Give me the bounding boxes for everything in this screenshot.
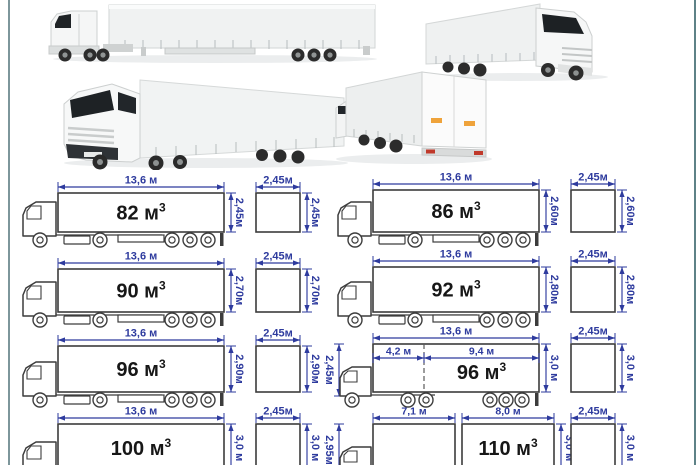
dimension-arrowhead bbox=[217, 260, 224, 265]
cross-section-square bbox=[256, 269, 300, 312]
height-dimension-label: 2,70м bbox=[233, 276, 245, 306]
wheel-hub bbox=[545, 67, 551, 73]
cross-section-diagram: 2,45м2,80м bbox=[571, 249, 636, 313]
dimension-arrowhead bbox=[228, 424, 233, 431]
wheel-hub bbox=[519, 397, 525, 403]
dimension-arrowhead bbox=[293, 337, 300, 342]
dimension-arrowhead bbox=[58, 260, 65, 265]
volume-label: 96 м3 bbox=[116, 357, 166, 381]
volume-label: 100 м3 bbox=[111, 436, 172, 460]
rear-bumper-bar bbox=[220, 233, 224, 246]
dimension-arrowhead bbox=[619, 385, 624, 392]
cross-section-square bbox=[571, 344, 615, 392]
side-skirt-drawing bbox=[433, 315, 479, 322]
volume-label: 92 м3 bbox=[431, 278, 481, 302]
diagram-row: 13,6 м2,45м82 м32,45м2,45м13,6 м2,60м86 … bbox=[23, 172, 636, 248]
fuel-tank-drawing bbox=[379, 316, 405, 324]
wheel-hub bbox=[187, 317, 193, 323]
wheel-hub bbox=[37, 237, 43, 243]
cab-window-drawing bbox=[27, 206, 41, 219]
dimension-arrowhead bbox=[543, 305, 548, 312]
wheel-hub bbox=[177, 159, 183, 165]
semi-truck-front-quarter-left-photo bbox=[56, 68, 348, 170]
segment-dimension-label: 7,1 м bbox=[401, 406, 427, 418]
dimension-arrowhead bbox=[543, 385, 548, 392]
dimension-arrowhead bbox=[256, 415, 263, 420]
dimension-arrowhead bbox=[217, 184, 224, 189]
truck-diagram: 13,6 м3,0 м100 м3 bbox=[23, 406, 245, 465]
wheel-hub bbox=[37, 397, 43, 403]
wheel-hub bbox=[169, 397, 175, 403]
truck-diagram: 13,6 м2,80м92 м3 bbox=[338, 249, 560, 328]
length-dimension-label: 13,6 м bbox=[125, 175, 158, 187]
segment-dimension-label: 8,0 м bbox=[495, 406, 521, 418]
wheel-hub bbox=[412, 237, 418, 243]
wheel-hub bbox=[352, 317, 358, 323]
wheel-hub bbox=[97, 159, 103, 165]
dimension-arrowhead bbox=[619, 190, 624, 197]
height-dimension-label: 2,80м bbox=[548, 275, 560, 305]
dimension-arrowhead bbox=[543, 190, 548, 197]
rear-marker-light bbox=[431, 118, 442, 123]
fuel-tank-drawing bbox=[64, 396, 90, 404]
dimension-arrowhead bbox=[462, 415, 469, 420]
wheel-hub bbox=[37, 317, 43, 323]
wheel bbox=[274, 150, 287, 163]
wheel-hub bbox=[87, 52, 92, 57]
dimension-arrowhead bbox=[58, 184, 65, 189]
wheel-hub bbox=[153, 160, 159, 166]
width-dimension-label: 2,45м bbox=[263, 406, 293, 418]
dimension-arrowhead bbox=[532, 335, 539, 340]
dimension-arrowhead bbox=[336, 424, 341, 431]
hazard-marking bbox=[474, 151, 483, 155]
volume-label: 86 м3 bbox=[431, 199, 481, 223]
diagram-row: 13,6 м2,70м90 м32,45м2,70м13,6 м2,80м92 … bbox=[23, 249, 636, 328]
dimension-arrowhead bbox=[228, 385, 233, 392]
rear-bumper-bar bbox=[220, 313, 224, 326]
dimension-arrowhead bbox=[304, 346, 309, 353]
dimension-arrowhead bbox=[373, 335, 380, 340]
length-dimension-label: 13,6 м bbox=[125, 406, 158, 418]
volume-label: 110 м3 bbox=[478, 436, 538, 460]
dimension-arrowhead bbox=[304, 385, 309, 392]
wheel-hub bbox=[295, 52, 300, 57]
cross-section-diagram: 2,45м3,0 м bbox=[571, 406, 636, 465]
dimension-arrowhead bbox=[619, 424, 624, 431]
dimension-arrowhead bbox=[532, 258, 539, 263]
cross-section-diagram: 2,45м3,0 м bbox=[256, 406, 321, 465]
diagram-row: 13,6 м2,90м96 м32,45м2,90м13,6 м4,2 м9,4… bbox=[23, 326, 636, 408]
rear-bumper-bar bbox=[535, 393, 539, 406]
dimension-arrowhead bbox=[543, 267, 548, 274]
cab-window-drawing bbox=[342, 206, 356, 219]
wheel-hub bbox=[100, 52, 105, 57]
volume-label: 82 м3 bbox=[116, 201, 166, 225]
dimension-arrowhead bbox=[532, 181, 539, 186]
truck-volume-diagram: 13,6 м2,45м82 м32,45м2,45м13,6 м2,60м86 … bbox=[0, 170, 700, 465]
cab-window-drawing bbox=[27, 446, 41, 459]
cross-section-square bbox=[256, 346, 300, 392]
cross-section-diagram: 2,45м2,60м bbox=[571, 172, 636, 233]
width-dimension-label: 2,45м bbox=[263, 175, 293, 187]
dimension-arrowhead bbox=[608, 181, 615, 186]
dimension-arrowhead bbox=[336, 344, 341, 351]
dimension-arrowhead bbox=[304, 424, 309, 431]
width-dimension-label: 2,45м bbox=[263, 328, 293, 340]
cross-section-square bbox=[571, 190, 615, 232]
cross-section-square bbox=[571, 424, 615, 465]
side-skirt-drawing bbox=[118, 315, 164, 322]
dimension-arrowhead bbox=[619, 267, 624, 274]
dimension-arrowhead bbox=[58, 415, 65, 420]
wheel-hub bbox=[327, 52, 332, 57]
truck-diagram: 13,6 м2,70м90 м3 bbox=[23, 251, 245, 328]
dimension-arrowhead bbox=[373, 415, 380, 420]
wheel-hub bbox=[573, 70, 579, 76]
segment-dimension-label: 9,4 м bbox=[469, 346, 495, 358]
cross-section-diagram: 2,45м2,45м bbox=[256, 175, 321, 233]
dimension-arrowhead bbox=[608, 415, 615, 420]
dimension-arrowhead bbox=[547, 415, 554, 420]
dimension-arrowhead bbox=[571, 335, 578, 340]
wheel-hub bbox=[412, 317, 418, 323]
side-skirt-drawing bbox=[433, 235, 479, 242]
width-dimension-label: 2,45м bbox=[263, 251, 293, 263]
cross-section-diagram: 2,45м2,90м bbox=[256, 328, 321, 393]
diagram-row: 13,6 м3,0 м100 м32,45м3,0 м7,1 м8,0 м3,0… bbox=[23, 406, 636, 465]
fuel-tank-drawing bbox=[64, 236, 90, 244]
dimension-arrowhead bbox=[293, 415, 300, 420]
rear-bumper bbox=[363, 46, 370, 55]
trailer-curtain bbox=[109, 5, 375, 48]
cab-window-drawing bbox=[27, 286, 41, 299]
dimension-arrowhead bbox=[558, 424, 563, 431]
rear-bumper-bar bbox=[535, 313, 539, 326]
height-dimension-label: 2,80м bbox=[624, 275, 636, 305]
dimension-arrowhead bbox=[619, 344, 624, 351]
dimension-arrowhead bbox=[304, 305, 309, 312]
dimension-arrowhead bbox=[543, 225, 548, 232]
dimension-arrowhead bbox=[256, 260, 263, 265]
dimension-arrowhead bbox=[256, 184, 263, 189]
height-dimension-label: 2,45м bbox=[233, 198, 245, 228]
dimension-arrowhead bbox=[571, 415, 578, 420]
truck-diagram: 13,6 м2,90м96 м3 bbox=[23, 328, 245, 408]
wheel-hub bbox=[97, 237, 103, 243]
wheel-hub bbox=[520, 317, 526, 323]
height-dimension-label: 3,0 м bbox=[548, 355, 560, 382]
wheel bbox=[256, 149, 268, 161]
volume-label: 90 м3 bbox=[116, 279, 166, 303]
truck-diagram: 13,6 м2,60м86 м3 bbox=[338, 172, 560, 248]
height-dimension-label: 3,0 м bbox=[624, 435, 636, 462]
wheel-hub bbox=[187, 237, 193, 243]
height-dimension-label: 3,0 м bbox=[233, 435, 245, 462]
side-skirt-drawing bbox=[118, 235, 164, 242]
wheel bbox=[292, 151, 305, 164]
dimension-arrowhead bbox=[608, 335, 615, 340]
height-dimension-label: 2,70м bbox=[309, 276, 321, 306]
truck-diagram: 13,6 м2,45м82 м3 bbox=[23, 175, 245, 248]
wheel bbox=[390, 140, 403, 153]
dimension-arrowhead bbox=[217, 337, 224, 342]
height-dimension-label: 2,60м bbox=[624, 196, 636, 226]
dimension-arrowhead bbox=[293, 184, 300, 189]
length-dimension-label: 13,6 м bbox=[125, 328, 158, 340]
cross-section-square bbox=[256, 424, 300, 465]
cab-window-drawing bbox=[27, 366, 41, 379]
wheel-hub bbox=[311, 52, 316, 57]
dimension-arrowhead bbox=[373, 258, 380, 263]
wheel-hub bbox=[205, 317, 211, 323]
dimension-arrowhead bbox=[228, 193, 233, 200]
wheel-hub bbox=[97, 397, 103, 403]
segment-dimension-label: 4,2 м bbox=[386, 346, 412, 358]
rear-bumper-bar bbox=[220, 393, 224, 406]
hazard-marking bbox=[426, 150, 435, 154]
wheel-hub bbox=[502, 237, 508, 243]
wheel-hub bbox=[423, 397, 429, 403]
width-dimension-label: 2,45м bbox=[578, 172, 608, 184]
cross-section-diagram: 2,45м2,70м bbox=[256, 251, 321, 313]
dimension-arrowhead bbox=[228, 305, 233, 312]
dimension-arrowhead bbox=[228, 269, 233, 276]
height-dimension-label: 3,0 м bbox=[309, 435, 321, 462]
dimension-arrowhead bbox=[571, 181, 578, 186]
length-dimension-label: 13,6 м bbox=[440, 326, 473, 338]
width-dimension-label: 2,45м bbox=[578, 326, 608, 338]
wheel-hub bbox=[484, 317, 490, 323]
trailer-curtain bbox=[346, 72, 422, 146]
front-height-dimension-label: 2,95м bbox=[323, 435, 335, 465]
wheel-hub bbox=[352, 237, 358, 243]
dimension-arrowhead bbox=[58, 337, 65, 342]
cross-section-diagram: 2,45м3,0 м bbox=[571, 326, 636, 393]
wheel-hub bbox=[205, 397, 211, 403]
rear-marker-light bbox=[464, 121, 475, 126]
width-dimension-label: 2,45м bbox=[578, 406, 608, 418]
semi-truck-rear-quarter-photo bbox=[334, 58, 496, 166]
dimension-arrowhead bbox=[619, 225, 624, 232]
wheel-hub bbox=[405, 397, 411, 403]
wheel-hub bbox=[520, 237, 526, 243]
wheel-hub bbox=[484, 237, 490, 243]
dimension-arrowhead bbox=[293, 260, 300, 265]
truck-box bbox=[373, 424, 455, 465]
cab-window-drawing bbox=[344, 451, 357, 462]
trailer-side-skirt bbox=[165, 48, 255, 54]
fuel-tank-drawing bbox=[64, 316, 90, 324]
wheel-hub bbox=[502, 317, 508, 323]
cab-window-drawing bbox=[344, 371, 357, 382]
dimension-arrowhead bbox=[448, 415, 455, 420]
landing-gear bbox=[141, 47, 146, 56]
side-skirt-drawing bbox=[118, 395, 164, 402]
cross-section-square bbox=[571, 267, 615, 312]
cab-window bbox=[338, 106, 346, 114]
length-dimension-label: 13,6 м bbox=[125, 251, 158, 263]
trailer-curtain bbox=[426, 4, 540, 64]
truck-diagram: 7,1 м8,0 м3,0 м2,95м110 м3 bbox=[323, 406, 575, 465]
semi-truck-side-view-photo bbox=[45, 2, 395, 64]
dimension-arrowhead bbox=[217, 415, 224, 420]
cab-window-drawing bbox=[342, 286, 356, 299]
fuel-tank-drawing bbox=[379, 236, 405, 244]
height-dimension-label: 3,0 м bbox=[624, 355, 636, 382]
length-dimension-label: 13,6 м bbox=[440, 172, 473, 184]
wheel-hub bbox=[169, 317, 175, 323]
wheel-hub bbox=[62, 52, 67, 57]
wheel-hub bbox=[349, 397, 355, 403]
trailer-roof-edge bbox=[109, 5, 375, 9]
cross-section-square bbox=[256, 193, 300, 232]
wheel-hub bbox=[169, 237, 175, 243]
height-dimension-label: 2,60м bbox=[548, 196, 560, 226]
dimension-arrowhead bbox=[228, 346, 233, 353]
dimension-arrowhead bbox=[571, 258, 578, 263]
dimension-arrowhead bbox=[228, 225, 233, 232]
length-dimension-label: 13,6 м bbox=[440, 249, 473, 261]
wheel-hub bbox=[487, 397, 493, 403]
width-dimension-label: 2,45м bbox=[578, 249, 608, 261]
truck-diagram: 13,6 м4,2 м9,4 м3,0 м2,45м96 м3 bbox=[323, 326, 560, 408]
wheel-hub bbox=[97, 317, 103, 323]
dimension-arrowhead bbox=[373, 181, 380, 186]
truck-volumes-infographic: 13,6 м2,45м82 м32,45м2,45м13,6 м2,60м86 … bbox=[0, 0, 700, 465]
wheel bbox=[359, 135, 370, 146]
dimension-arrowhead bbox=[608, 258, 615, 263]
trailer-curtain bbox=[140, 80, 344, 158]
dimension-arrowhead bbox=[304, 193, 309, 200]
wheel-hub bbox=[503, 397, 509, 403]
dimension-arrowhead bbox=[256, 337, 263, 342]
height-dimension-label: 2,90м bbox=[233, 354, 245, 384]
wheel bbox=[374, 137, 386, 149]
height-dimension-label: 2,90м bbox=[309, 354, 321, 384]
wheel-hub bbox=[205, 237, 211, 243]
height-dimension-label: 2,45м bbox=[309, 198, 321, 228]
front-height-dimension-label: 2,45м bbox=[323, 355, 335, 385]
dimension-arrowhead bbox=[543, 344, 548, 351]
dimension-arrowhead bbox=[304, 225, 309, 232]
volume-label: 96 м3 bbox=[457, 360, 507, 384]
dimension-arrowhead bbox=[304, 269, 309, 276]
wheel-hub bbox=[187, 397, 193, 403]
rear-bumper-bar bbox=[535, 233, 539, 246]
dimension-arrowhead bbox=[619, 305, 624, 312]
